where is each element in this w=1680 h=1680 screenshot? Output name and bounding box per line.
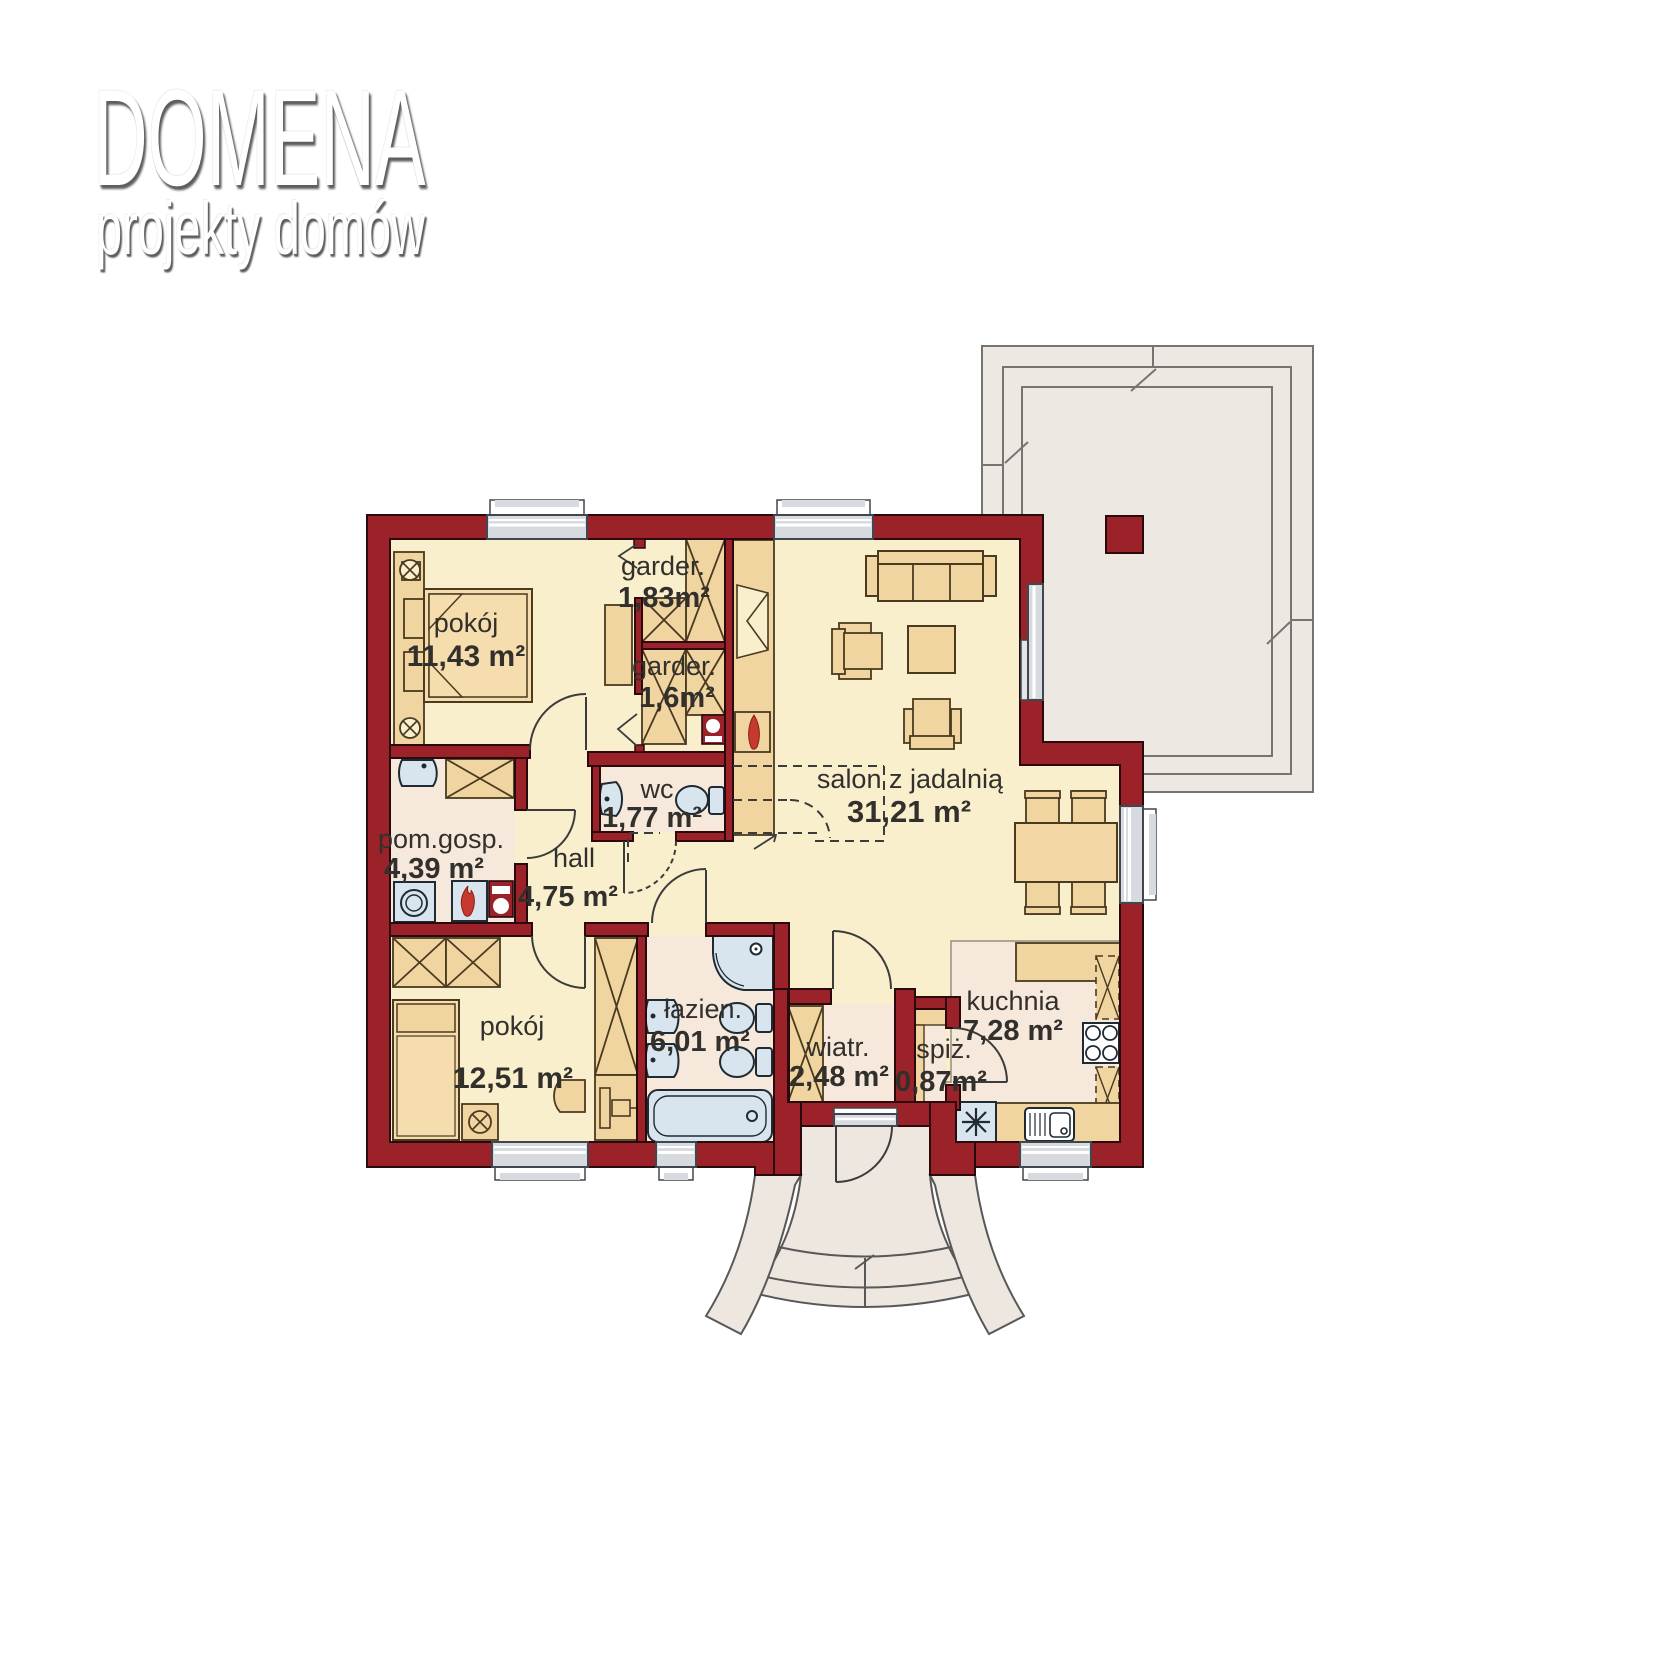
svg-text:kuchnia: kuchnia: [966, 986, 1060, 1016]
svg-text:hall: hall: [553, 843, 595, 873]
svg-text:1,83m²: 1,83m²: [618, 582, 710, 614]
svg-text:7,28 m²: 7,28 m²: [963, 1015, 1063, 1047]
svg-text:1,6m²: 1,6m²: [639, 682, 715, 714]
svg-text:wiatr.: wiatr.: [805, 1032, 869, 1062]
svg-text:6,01 m²: 6,01 m²: [650, 1026, 750, 1058]
svg-text:31,21 m²: 31,21 m²: [847, 794, 971, 829]
svg-text:1,77 m²: 1,77 m²: [602, 802, 702, 834]
svg-text:pokój: pokój: [480, 1011, 545, 1041]
svg-text:0,87m²: 0,87m²: [895, 1066, 987, 1098]
svg-text:garder.: garder.: [621, 551, 705, 581]
svg-text:4,39 m²: 4,39 m²: [384, 853, 484, 885]
svg-text:łazien.: łazien.: [664, 994, 742, 1024]
svg-text:pokój: pokój: [434, 608, 499, 638]
svg-text:2,48 m²: 2,48 m²: [789, 1061, 889, 1093]
svg-text:11,43 m²: 11,43 m²: [407, 640, 525, 673]
svg-text:garder.: garder.: [632, 651, 716, 681]
svg-text:salon z jadalnią: salon z jadalnią: [817, 764, 1004, 794]
svg-text:wc: wc: [640, 774, 674, 804]
svg-text:pom.gosp.: pom.gosp.: [378, 824, 504, 854]
svg-text:12,51 m²: 12,51 m²: [453, 1062, 573, 1095]
svg-text:4,75 m²: 4,75 m²: [518, 881, 618, 913]
